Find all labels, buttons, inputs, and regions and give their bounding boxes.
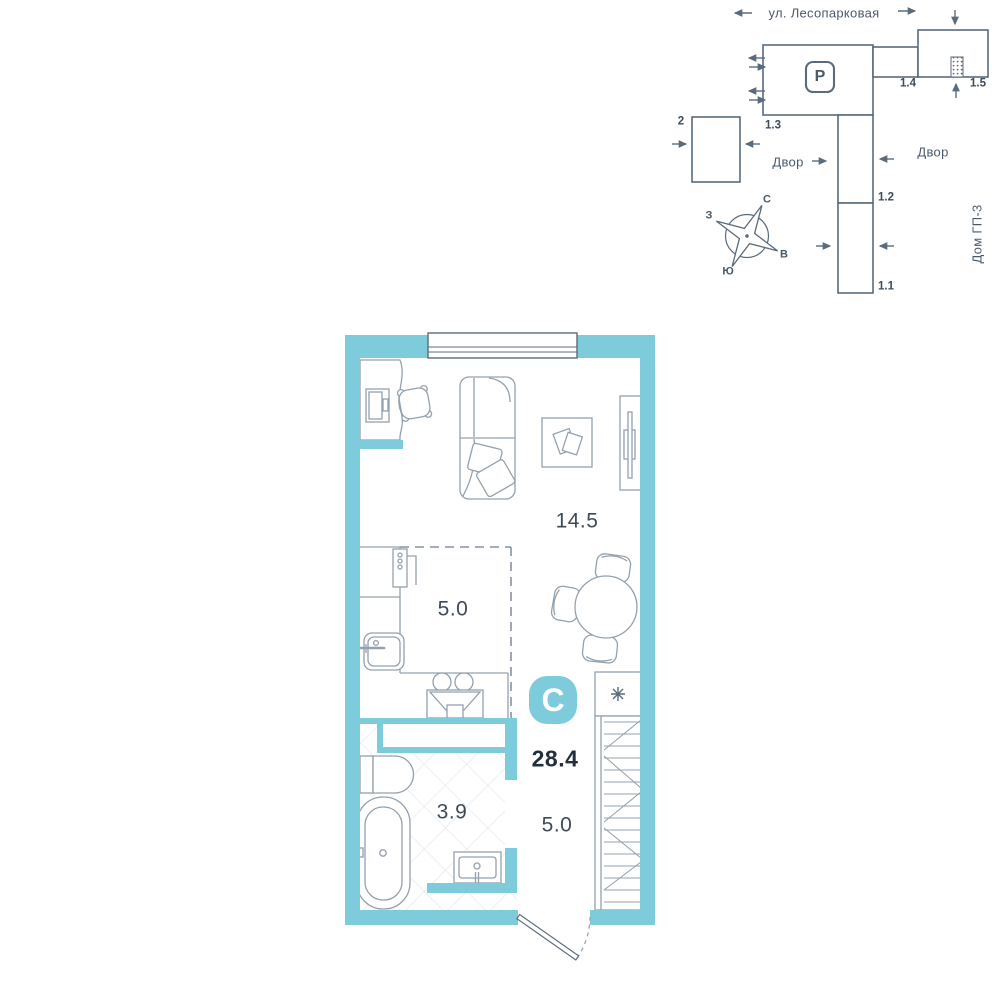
building-2 (692, 117, 740, 182)
sofa (460, 377, 516, 499)
house-label: Дом ГП-3 (971, 204, 984, 263)
building-1-2-label: 1.2 (878, 192, 894, 204)
yard-label-right: Двор (917, 146, 948, 159)
desk (360, 360, 402, 440)
dining-chair (582, 634, 619, 663)
yard-label-left: Двор (772, 156, 803, 169)
bathroom-area-label: 3.9 (437, 802, 468, 823)
kitchen-area-label: 5.0 (438, 599, 469, 620)
building-1-1 (838, 203, 873, 293)
coffee-table (542, 418, 592, 467)
living-area-label: 14.5 (556, 511, 599, 532)
building-1-3-label: 1.3 (765, 120, 781, 132)
parking-sign-label: P (815, 69, 826, 85)
building-1-4 (873, 47, 918, 77)
plan-drawing (0, 0, 1000, 1000)
compass-rose (716, 205, 777, 266)
street-name: ул. Лесопарковая (768, 7, 879, 20)
building-1-2 (838, 115, 873, 203)
compass-south-label: Ю (722, 267, 733, 278)
stove (427, 673, 483, 718)
building-1-5-label: 1.5 (970, 78, 986, 90)
dining-table (575, 576, 637, 638)
hall-area-label: 5.0 (542, 815, 573, 836)
building-2-label: 2 (678, 116, 684, 128)
studio-type-letter: С (541, 682, 564, 719)
toilet (360, 756, 414, 793)
compass-west-label: З (706, 211, 713, 222)
entrance-door (517, 915, 590, 960)
studio-type-badge: С (529, 676, 577, 724)
tv-unit (620, 396, 642, 490)
building-1-1-label: 1.1 (878, 281, 894, 293)
compass-east-label: В (780, 250, 788, 261)
appliance-box (595, 672, 642, 716)
compass-north-label: С (763, 195, 771, 206)
bathtub (357, 797, 410, 909)
desk-chair (397, 385, 432, 422)
washbasin (454, 852, 501, 883)
total-area-label: 28.4 (532, 748, 579, 771)
snowflake-icon (611, 687, 625, 701)
floorplan-page: ул. Лесопарковая P 1.3 1.4 1.5 1.2 1.1 2… (0, 0, 1000, 1000)
building-1-4-label: 1.4 (900, 78, 916, 90)
wardrobe (595, 716, 642, 910)
duct-niche (383, 724, 505, 747)
window (428, 333, 577, 358)
section-marker (951, 57, 963, 77)
